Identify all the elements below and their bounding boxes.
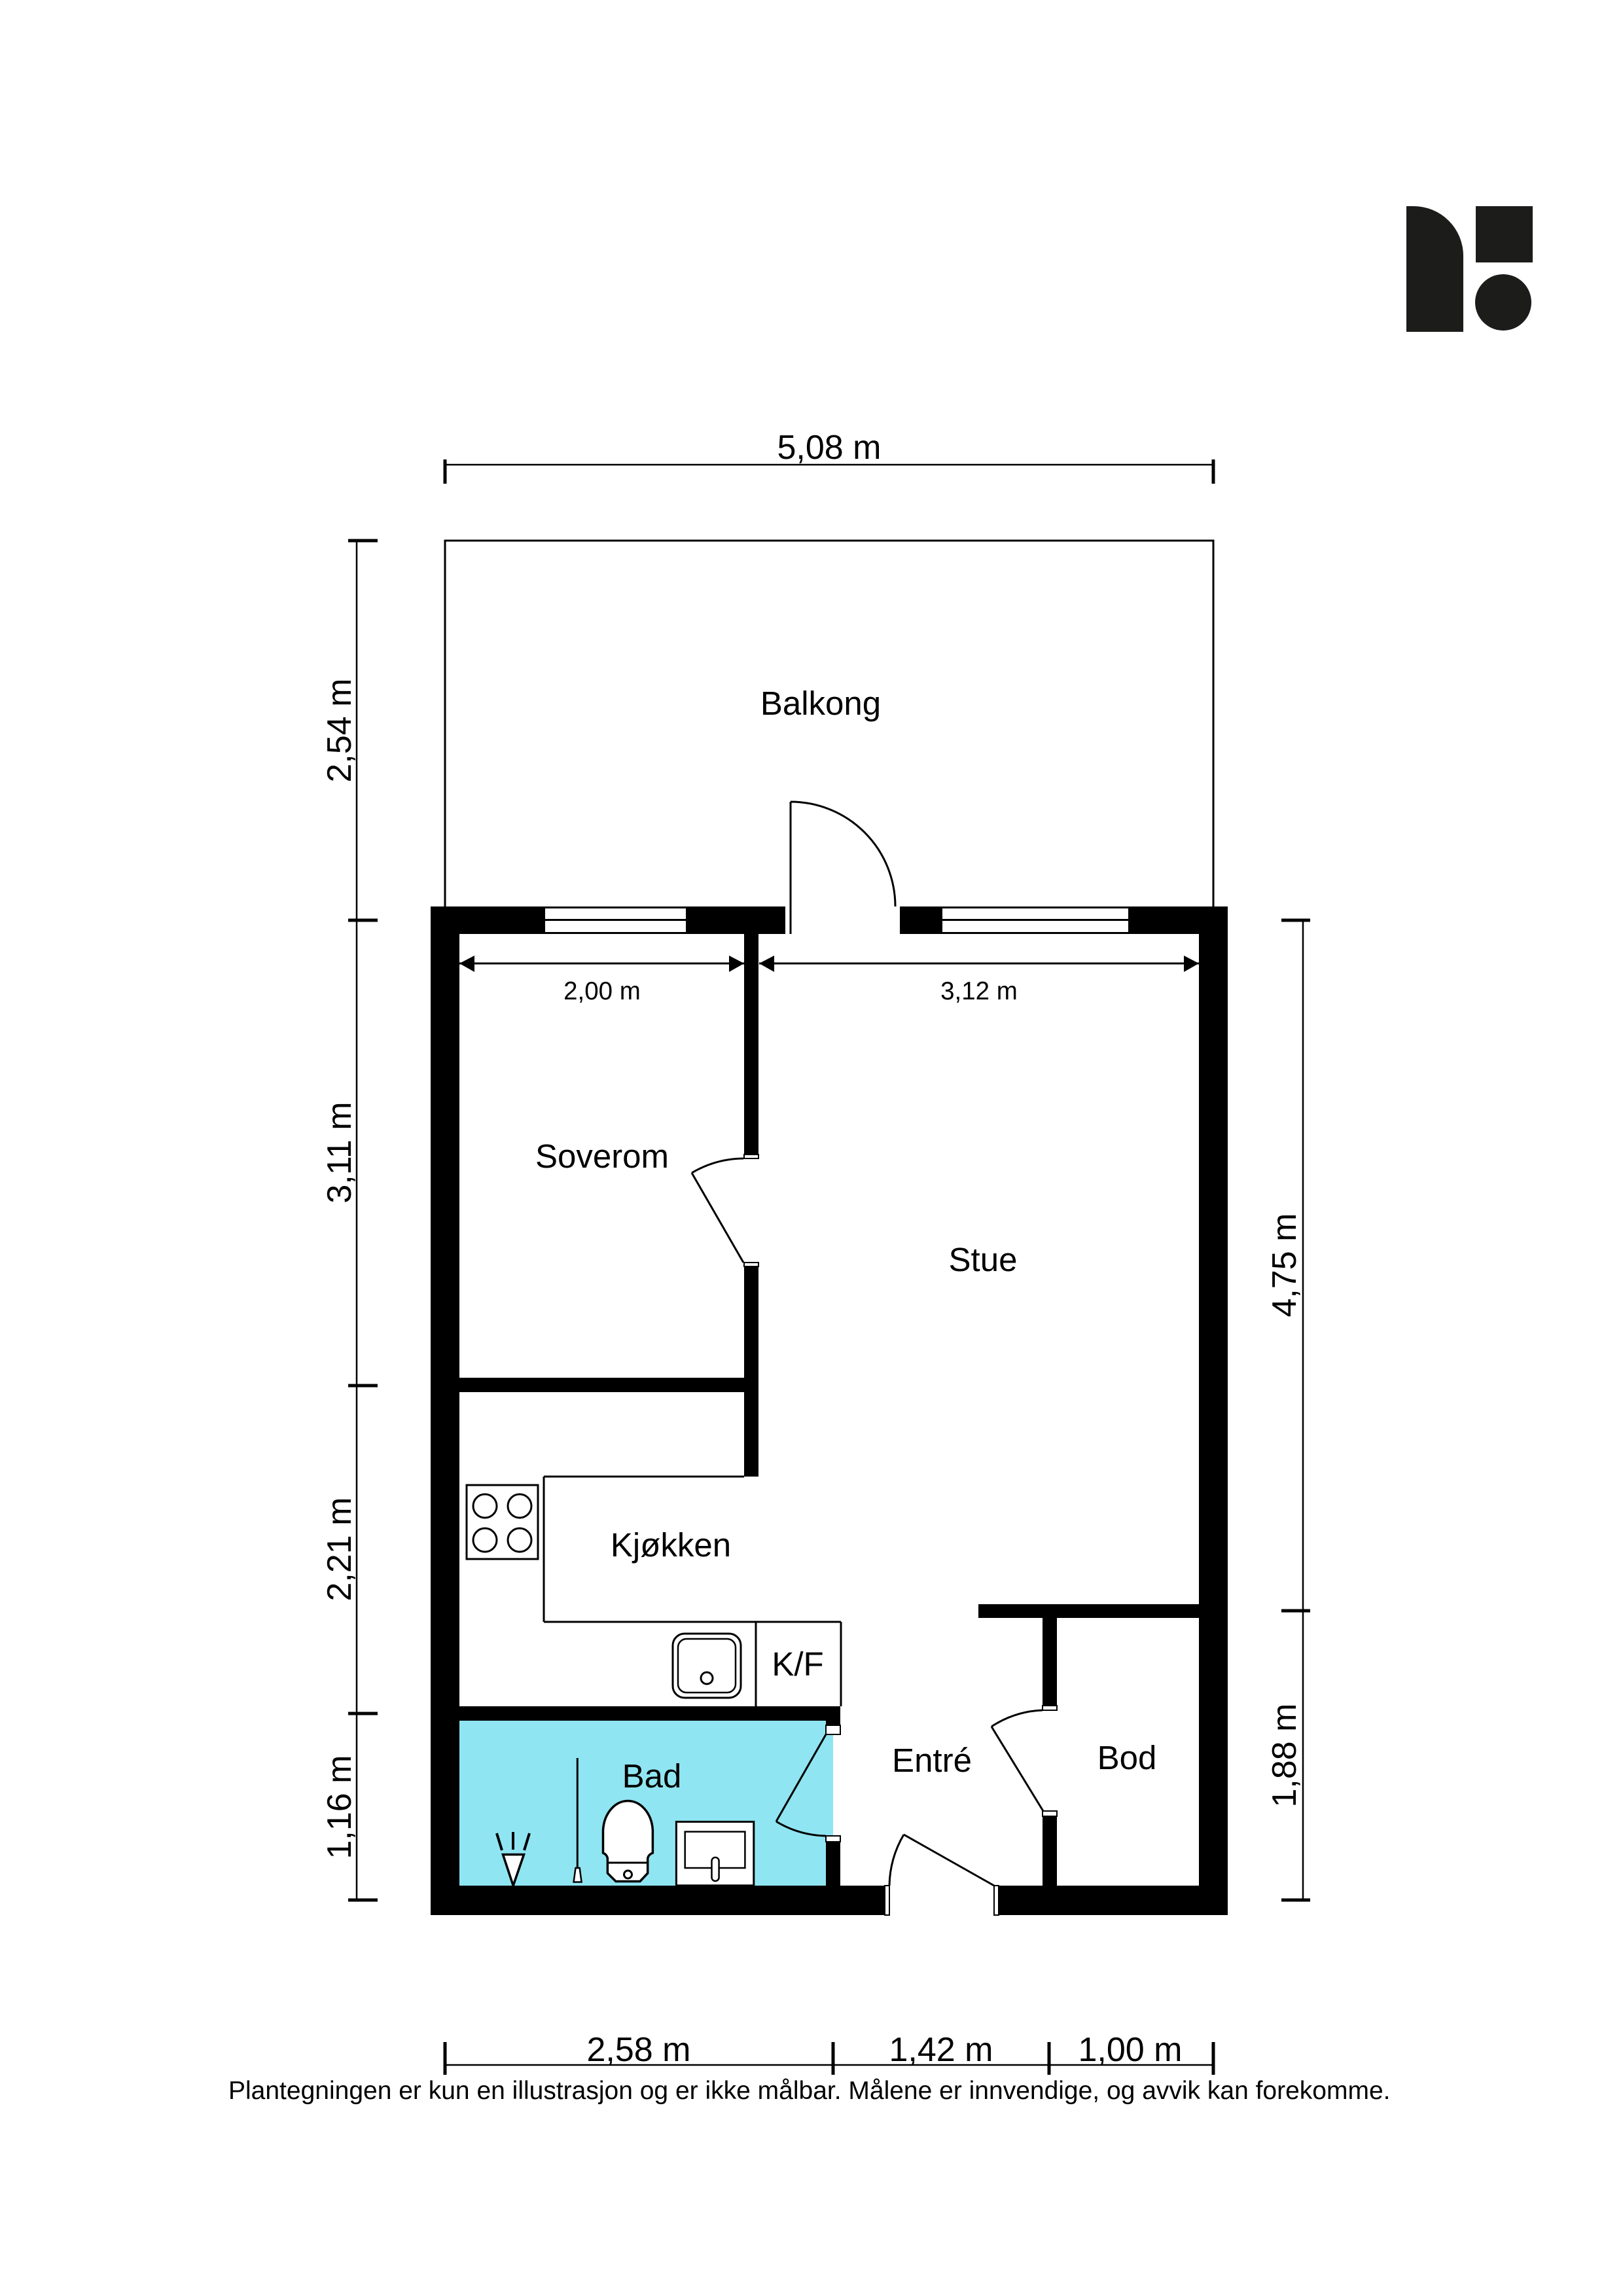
svg-text:2,54 m: 2,54 m bbox=[321, 679, 359, 783]
svg-text:Balkong: Balkong bbox=[760, 685, 881, 722]
svg-text:2,58 m: 2,58 m bbox=[587, 2031, 691, 2069]
svg-text:K/F: K/F bbox=[772, 1645, 823, 1683]
svg-text:Kjøkken: Kjøkken bbox=[611, 1526, 731, 1564]
svg-text:Soverom: Soverom bbox=[535, 1138, 669, 1175]
svg-text:1,00 m: 1,00 m bbox=[1079, 2031, 1183, 2069]
svg-text:2,21 m: 2,21 m bbox=[321, 1498, 359, 1602]
svg-text:Stue: Stue bbox=[949, 1241, 1018, 1278]
svg-text:5,08 m: 5,08 m bbox=[777, 429, 882, 467]
svg-text:1,42 m: 1,42 m bbox=[889, 2031, 993, 2069]
svg-text:4,75 m: 4,75 m bbox=[1266, 1213, 1304, 1318]
svg-text:Bod: Bod bbox=[1097, 1739, 1157, 1776]
svg-text:Bad: Bad bbox=[622, 1757, 682, 1795]
svg-text:3,11 m: 3,11 m bbox=[321, 1102, 359, 1203]
svg-text:3,12 m: 3,12 m bbox=[940, 977, 1018, 1005]
svg-text:1,16 m: 1,16 m bbox=[321, 1755, 359, 1859]
svg-text:Entré: Entré bbox=[892, 1742, 972, 1779]
svg-text:1,88 m: 1,88 m bbox=[1266, 1704, 1304, 1808]
svg-text:2,00 m: 2,00 m bbox=[563, 977, 641, 1005]
svg-text:Plantegningen er kun en illust: Plantegningen er kun en illustrasjon og … bbox=[228, 2077, 1391, 2105]
